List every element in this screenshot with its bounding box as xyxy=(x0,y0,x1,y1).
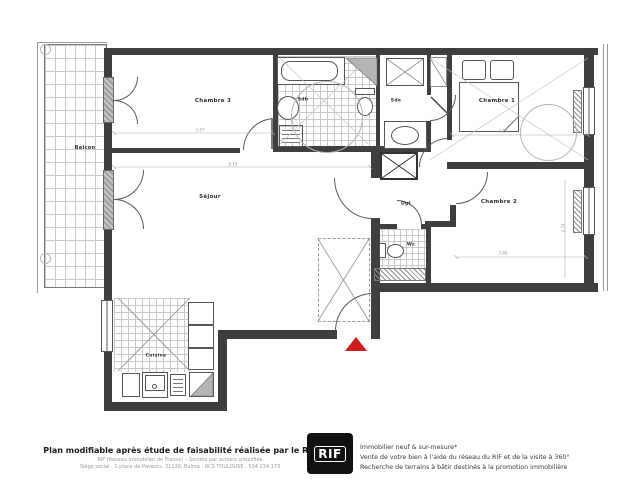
plan-line xyxy=(114,170,144,200)
plan-line xyxy=(112,131,116,135)
bathtub-inner xyxy=(281,61,338,81)
footer-company-line: RIF (Réseau Immobilier de France) – Soci… xyxy=(40,457,320,463)
washbasin-sde xyxy=(391,126,419,145)
plan-line xyxy=(104,402,227,411)
dimension-chambre3: 3.67 xyxy=(196,128,205,133)
corridor-closet xyxy=(430,57,447,87)
turning-circle-sdb xyxy=(291,81,363,153)
kitchen-window xyxy=(101,300,113,352)
plan-line xyxy=(376,55,380,146)
plan-line xyxy=(607,44,608,291)
footer-service-line: Recherche de terrains à bâtir destinés à… xyxy=(360,463,635,473)
toilet-sdb-tank xyxy=(355,88,375,95)
plan-line xyxy=(114,100,138,124)
bed-mattress xyxy=(459,82,519,132)
chambre1-window xyxy=(583,87,595,135)
entrance-arrow xyxy=(345,337,367,351)
kitchen-corner-unit xyxy=(189,372,214,397)
plan-line xyxy=(218,330,227,411)
kitchen-cabinet xyxy=(188,302,214,325)
room-label-wc: Wc xyxy=(407,243,415,248)
plan-line xyxy=(225,330,337,339)
room-label-cuisine: Cuisine xyxy=(146,354,167,359)
plan-line xyxy=(603,44,604,291)
room-label-chambre2: Chambre 2 xyxy=(481,199,517,205)
plan-line xyxy=(584,135,594,187)
chambre2-window xyxy=(583,187,595,235)
plan-line xyxy=(114,77,138,101)
kitchen-appliance xyxy=(170,374,186,396)
toilet-wc-bowl xyxy=(387,244,404,258)
kitchen-cabinet xyxy=(188,348,214,370)
plan-line xyxy=(104,48,598,55)
plan-line xyxy=(112,148,240,153)
balcony-door-frame-chambre3 xyxy=(103,77,114,123)
bed-pillow xyxy=(462,60,486,80)
plan-line xyxy=(104,123,112,170)
plan-line xyxy=(334,178,372,219)
radiator-chambre2 xyxy=(573,190,582,233)
balcony-floor xyxy=(44,44,107,288)
plan-line xyxy=(447,162,594,169)
plan-line xyxy=(371,152,380,178)
plan-line xyxy=(454,255,458,259)
footer-title: Plan modifiable après étude de faisabili… xyxy=(40,446,320,455)
floor-plan-page: Balcon Chambre 3 Sdb Sde Chambre 1 Séjou… xyxy=(0,0,640,480)
room-label-chambre1: Chambre 1 xyxy=(479,98,515,104)
footer-services: Immobilier neuf & sur-mesure* Vente de v… xyxy=(360,443,635,473)
dimension-chambre2: 3.60 xyxy=(499,251,508,256)
room-label-sejour: Séjour xyxy=(199,194,221,200)
plan-line xyxy=(112,165,116,169)
plan-line xyxy=(371,224,397,229)
dimension-sejour: 6.19 xyxy=(229,162,238,167)
plan-line xyxy=(104,55,112,77)
footer: Plan modifiable après étude de faisabili… xyxy=(0,430,640,480)
plan-line xyxy=(40,44,51,55)
technical-shaft xyxy=(380,152,418,180)
kitchen-floor xyxy=(114,298,190,372)
dimension-chambre1: 4.17 xyxy=(499,129,508,134)
plan-line xyxy=(373,283,598,292)
bed-pillow xyxy=(490,60,514,80)
plan-line xyxy=(40,253,51,264)
room-label-sde: Sde xyxy=(391,99,401,104)
plan-line xyxy=(243,118,275,150)
rif-logo-text: RIF xyxy=(314,446,345,462)
room-label-sdb: Sdb xyxy=(298,98,309,103)
plan-line xyxy=(584,55,594,87)
footer-address-line: Siège social : 1 place de Paveurs, 31130… xyxy=(40,464,320,470)
plan-line xyxy=(426,224,431,284)
plan-line xyxy=(114,199,144,229)
footer-service-line: Immobilier neuf & sur-mesure* xyxy=(360,443,635,453)
room-label-dgt: Dgt xyxy=(401,202,411,207)
shower-tray-sde xyxy=(386,58,424,86)
kitchen-cabinet xyxy=(122,373,140,397)
entry-closet xyxy=(318,238,370,322)
balcony-door-frame-sejour xyxy=(103,170,114,230)
footer-service-line: Vente de votre bien à l'aide du réseau d… xyxy=(360,453,635,463)
floor-plan: Balcon Chambre 3 Sdb Sde Chambre 1 Séjou… xyxy=(0,0,640,430)
dimension-chambre2-height: 2.74 xyxy=(561,224,566,233)
plan-line xyxy=(37,42,38,293)
plan-line xyxy=(104,230,112,300)
radiator-wc xyxy=(374,268,426,281)
plan-line xyxy=(37,42,107,43)
kitchen-cabinet xyxy=(188,325,214,348)
room-label-balcon: Balcon xyxy=(75,145,96,151)
room-label-chambre3: Chambre 3 xyxy=(195,98,231,104)
rif-logo: RIF xyxy=(307,433,353,474)
turning-circle-chambre1 xyxy=(520,104,577,161)
plan-line xyxy=(430,95,456,121)
toilet-wc-tank xyxy=(379,243,386,258)
plan-line xyxy=(104,352,112,402)
kitchen-sink-drain xyxy=(152,384,157,389)
